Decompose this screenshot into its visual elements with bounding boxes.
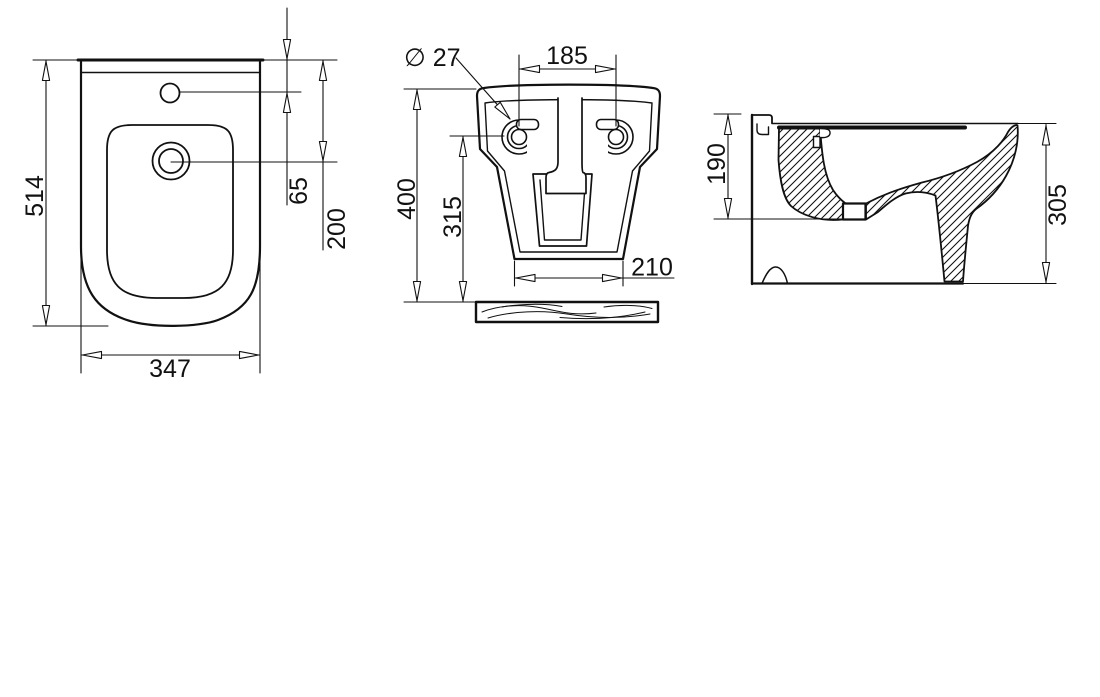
basin-outline bbox=[107, 125, 233, 298]
dim-plan-depth: 514 bbox=[21, 175, 49, 217]
dim-side-height: 305 bbox=[1044, 184, 1072, 226]
fixing-hole-left bbox=[502, 120, 546, 155]
top-rear-step bbox=[752, 115, 772, 123]
rear-extension-lines bbox=[404, 55, 623, 302]
plan-view-labels: 514 347 65 200 bbox=[21, 175, 351, 383]
dim-side-outlet-height: 190 bbox=[703, 143, 731, 185]
section-hatch-front-wall bbox=[779, 128, 846, 220]
dim-rear-hole-diameter: ∅ 27 bbox=[404, 44, 461, 72]
bidet-dimension-drawing: 514 347 65 200 bbox=[0, 0, 1100, 697]
tap-hole bbox=[161, 84, 180, 103]
dim-rear-height: 400 bbox=[393, 178, 421, 220]
rear-view bbox=[404, 55, 674, 322]
wood-grain bbox=[482, 304, 652, 318]
dim-rear-base-width: 210 bbox=[631, 254, 673, 282]
mounting-board bbox=[476, 302, 658, 322]
fixing-hole-right bbox=[589, 120, 633, 155]
rear-view-labels: ∅ 27 185 400 315 210 bbox=[393, 42, 673, 282]
drain-column bbox=[546, 98, 586, 194]
overflow-port bbox=[814, 137, 821, 148]
drain-hole-inner bbox=[159, 149, 183, 173]
drain-outlet-box bbox=[843, 204, 866, 220]
dim-65 bbox=[283, 8, 290, 205]
drain-hole-outer bbox=[153, 143, 190, 180]
hole-diameter-leader bbox=[456, 58, 513, 121]
side-view bbox=[714, 114, 1056, 284]
lower-bracket-hook bbox=[762, 267, 788, 284]
side-view-labels: 190 305 bbox=[703, 143, 1072, 226]
dim-plan-width: 347 bbox=[149, 355, 191, 383]
technical-drawing-canvas: 514 347 65 200 bbox=[0, 0, 1100, 697]
section-hatch-rear-wall bbox=[866, 125, 1018, 282]
dim-plan-drain-offset: 200 bbox=[323, 208, 351, 250]
dim-plan-tap-offset: 65 bbox=[285, 177, 313, 205]
dim-rear-hole-height: 315 bbox=[439, 196, 467, 238]
rim-inner-lip bbox=[820, 129, 830, 138]
dim-rear-hole-spacing: 185 bbox=[546, 42, 588, 70]
upper-bracket-hook bbox=[757, 124, 769, 135]
